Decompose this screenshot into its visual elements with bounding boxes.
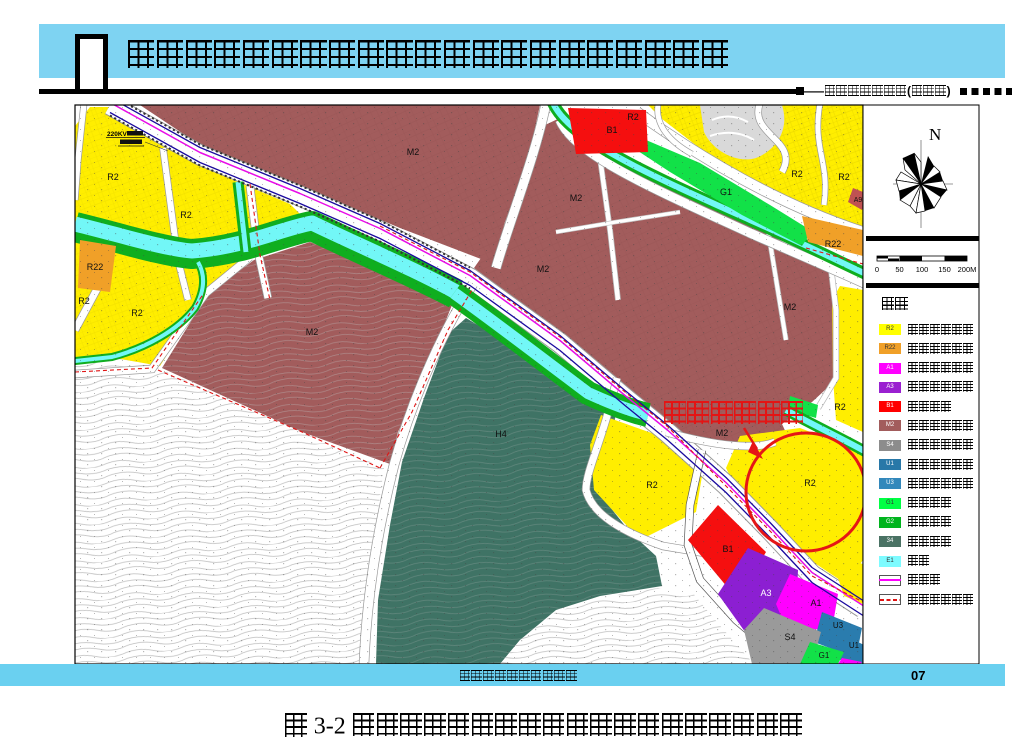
svg-text:N: N bbox=[929, 125, 941, 144]
svg-text:0: 0 bbox=[875, 265, 879, 274]
svg-text:150: 150 bbox=[938, 265, 951, 274]
svg-text:100: 100 bbox=[916, 265, 929, 274]
svg-text:200M: 200M bbox=[958, 265, 977, 274]
svg-text:50: 50 bbox=[895, 265, 903, 274]
svg-text:220KV: 220KV bbox=[107, 131, 128, 138]
